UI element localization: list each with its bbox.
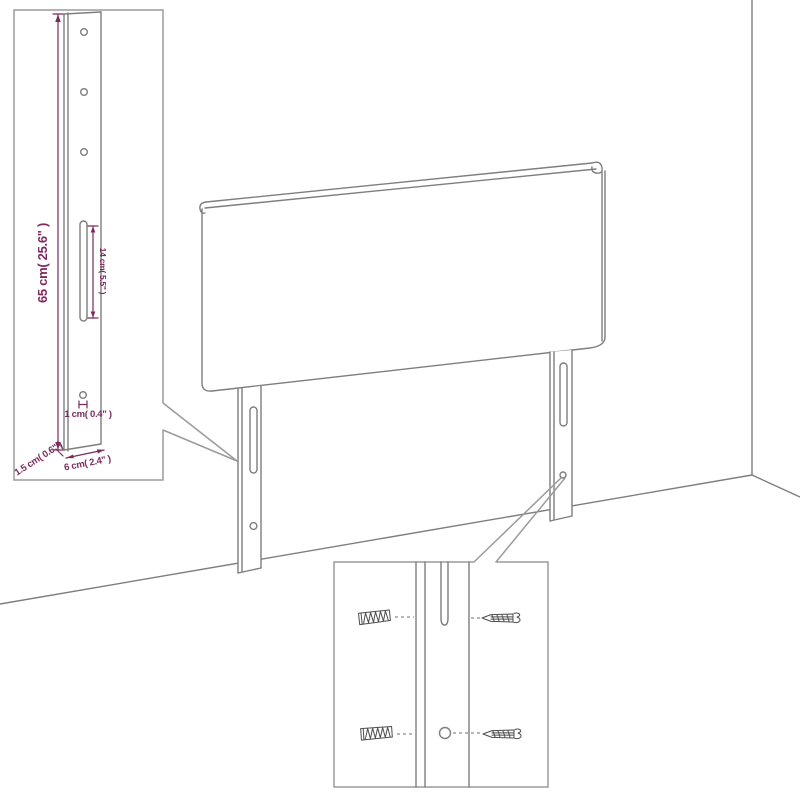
leader-line <box>163 403 237 461</box>
height-dimension-label: 65 cm( 25.6" ) <box>35 223 50 303</box>
leader-line <box>163 430 237 461</box>
panel-face <box>202 164 605 391</box>
mounting-detail-callout-box <box>334 562 548 787</box>
callout-leader-left <box>163 403 237 461</box>
left-mounting-leg <box>238 386 261 573</box>
right-mounting-leg <box>550 350 572 521</box>
floor-line-right <box>752 475 800 497</box>
headboard-dimension-diagram: 65 cm( 25.6" ) 14 cm( 5.5" ) 1 cm( 0.4" … <box>0 0 800 800</box>
headboard-panel <box>200 162 605 391</box>
diagram-canvas: 65 cm( 25.6" ) 14 cm( 5.5" ) 1 cm( 0.4" … <box>0 0 800 800</box>
leg-detail-callout-box: 65 cm( 25.6" ) 14 cm( 5.5" ) 1 cm( 0.4" … <box>13 10 163 480</box>
slot-length-dimension-label: 14 cm( 5.5" ) <box>98 248 108 295</box>
hole-diameter-label: 1 cm( 0.4" ) <box>64 409 112 420</box>
